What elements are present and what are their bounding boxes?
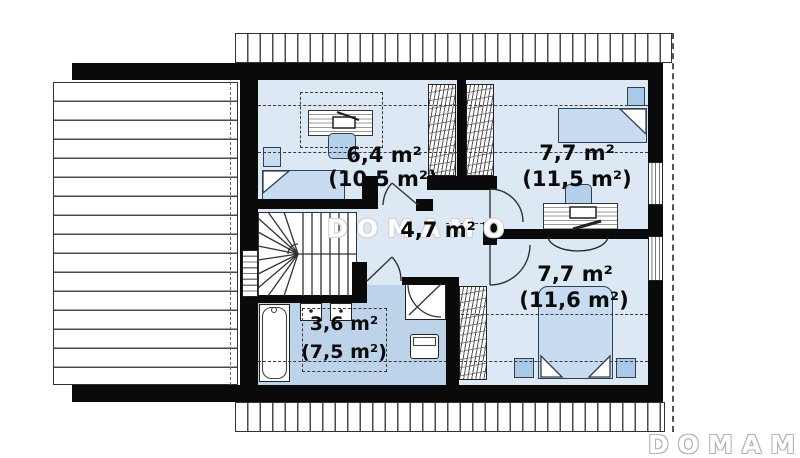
floor-plan-canvas: DOMAMO 6,4 m² (10,5 m²) 7,7 m² (11,5 m²)…	[0, 0, 800, 458]
room-label-total: (10,5 m²)	[328, 167, 437, 191]
room-label-total: (11,6 m²)	[519, 288, 628, 312]
room-label-total: (7,5 m²)	[301, 341, 387, 363]
room-label-usable: 4,7 m²	[400, 218, 476, 242]
room-label-total: (11,5 m²)	[522, 167, 631, 191]
brand-logo: DOMAMO	[648, 430, 800, 458]
room-label-usable: 7,7 m²	[539, 141, 615, 165]
room-label-usable: 6,4 m²	[346, 143, 422, 167]
room-label-usable: 7,7 m²	[537, 262, 613, 286]
room-label-usable: 3,6 m²	[310, 313, 378, 335]
